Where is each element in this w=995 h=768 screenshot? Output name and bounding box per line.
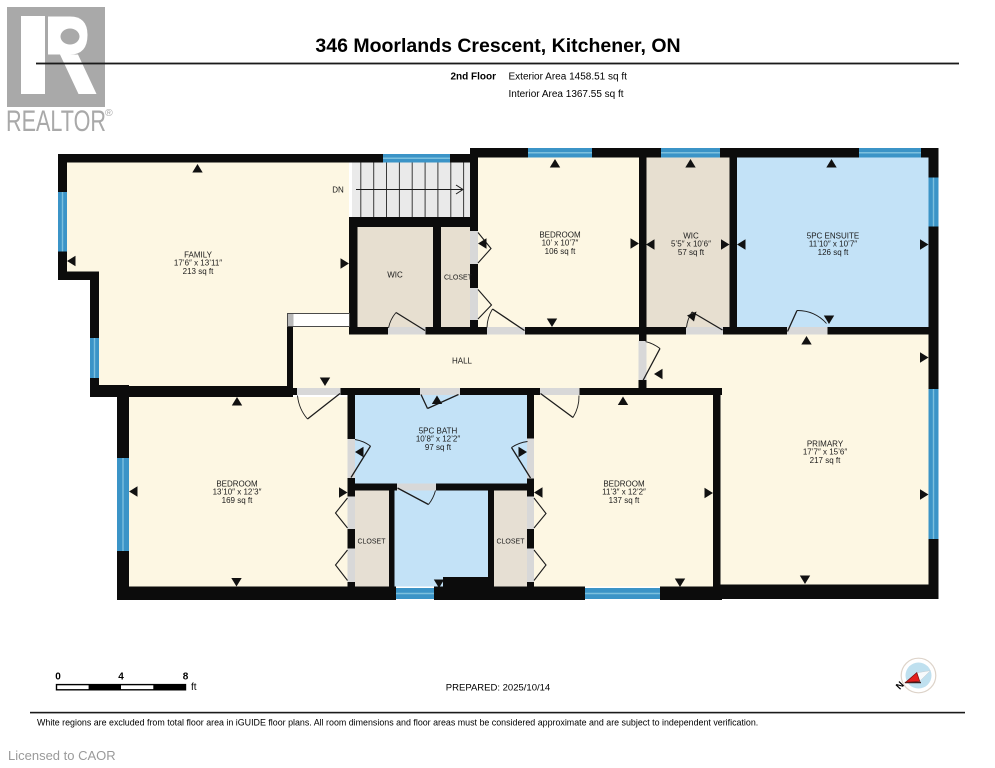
svg-text:8: 8: [183, 672, 189, 683]
svg-text:WIC: WIC: [387, 271, 403, 280]
svg-text:®: ®: [105, 107, 113, 119]
svg-text:169 sq ft: 169 sq ft: [222, 496, 253, 505]
svg-text:ft: ft: [191, 682, 197, 693]
svg-text:2nd Floor: 2nd Floor: [450, 72, 496, 83]
svg-text:PREPARED: 2025/10/14: PREPARED: 2025/10/14: [446, 683, 550, 694]
svg-text:White regions are excluded fro: White regions are excluded from total fl…: [37, 718, 758, 728]
svg-text:Licensed to CAOR: Licensed to CAOR: [8, 748, 116, 763]
svg-text:Exterior Area 1458.51 sq ft: Exterior Area 1458.51 sq ft: [509, 72, 628, 83]
svg-text:CLOSET: CLOSET: [357, 539, 386, 546]
svg-text:Interior Area 1367.55 sq ft: Interior Area 1367.55 sq ft: [509, 89, 624, 100]
svg-text:97 sq ft: 97 sq ft: [425, 443, 452, 452]
svg-text:57 sq ft: 57 sq ft: [678, 248, 705, 257]
svg-text:213 sq ft: 213 sq ft: [183, 267, 214, 276]
svg-text:CLOSET: CLOSET: [496, 539, 525, 546]
svg-text:346 Moorlands Crescent, Kitche: 346 Moorlands Crescent, Kitchener, ON: [315, 35, 680, 57]
svg-text:106 sq ft: 106 sq ft: [545, 247, 576, 256]
svg-text:4: 4: [118, 672, 124, 683]
svg-text:HALL: HALL: [452, 357, 473, 366]
svg-text:137 sq ft: 137 sq ft: [609, 496, 640, 505]
svg-text:217 sq ft: 217 sq ft: [810, 456, 841, 465]
svg-text:126 sq ft: 126 sq ft: [818, 248, 849, 257]
svg-text:DN: DN: [332, 186, 344, 195]
svg-text:CLOSET: CLOSET: [444, 275, 473, 282]
svg-text:REALTOR: REALTOR: [6, 105, 106, 138]
svg-text:0: 0: [55, 672, 61, 683]
